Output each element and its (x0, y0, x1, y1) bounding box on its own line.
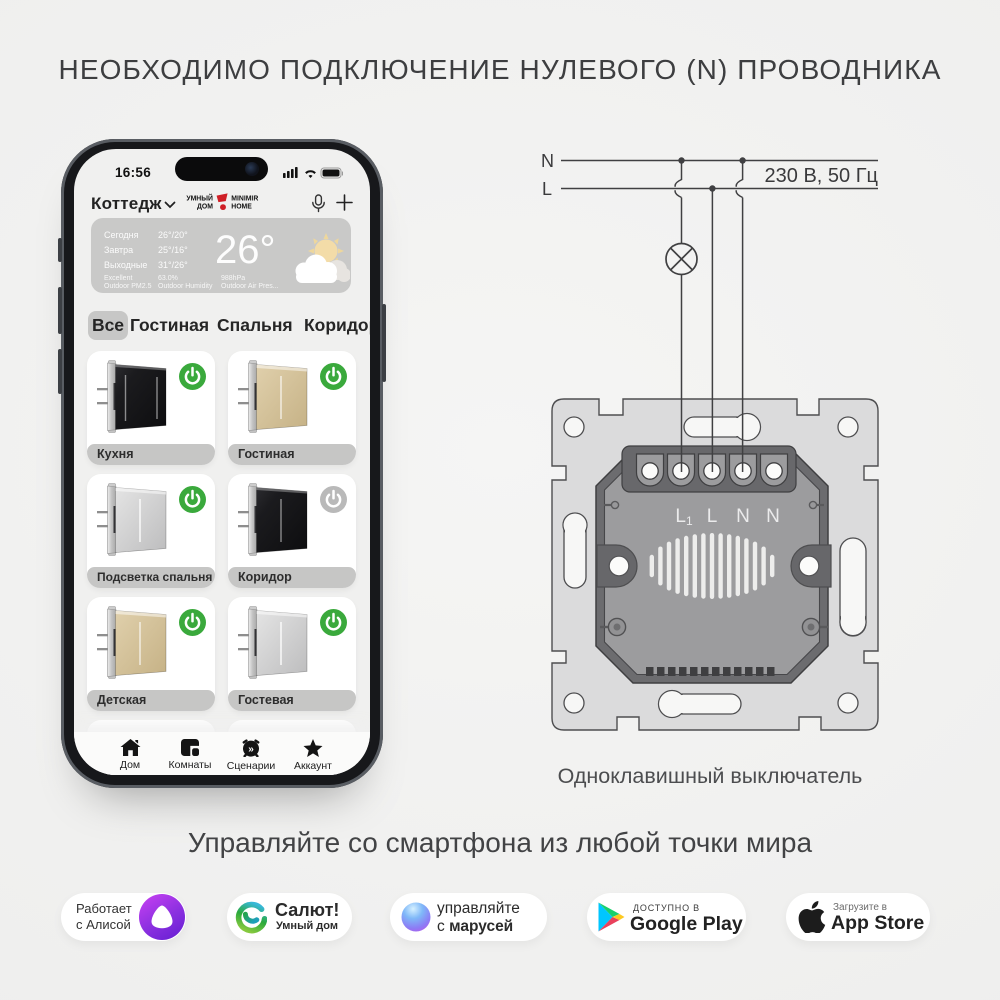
svg-text:N: N (736, 506, 750, 527)
svg-text:»: » (248, 744, 254, 755)
svg-text:MINIMIR: MINIMIR (231, 195, 258, 202)
svg-text:HOME: HOME (231, 204, 252, 211)
svg-text:УМНЫЙ: УМНЫЙ (186, 193, 213, 202)
svg-text:N: N (541, 151, 554, 171)
svg-text:ДОМ: ДОМ (197, 204, 213, 211)
svg-text:L: L (707, 506, 718, 527)
svg-text:L: L (542, 179, 552, 199)
svg-text:230 В, 50 Гц: 230 В, 50 Гц (765, 165, 878, 187)
svg-text:N: N (766, 506, 780, 527)
